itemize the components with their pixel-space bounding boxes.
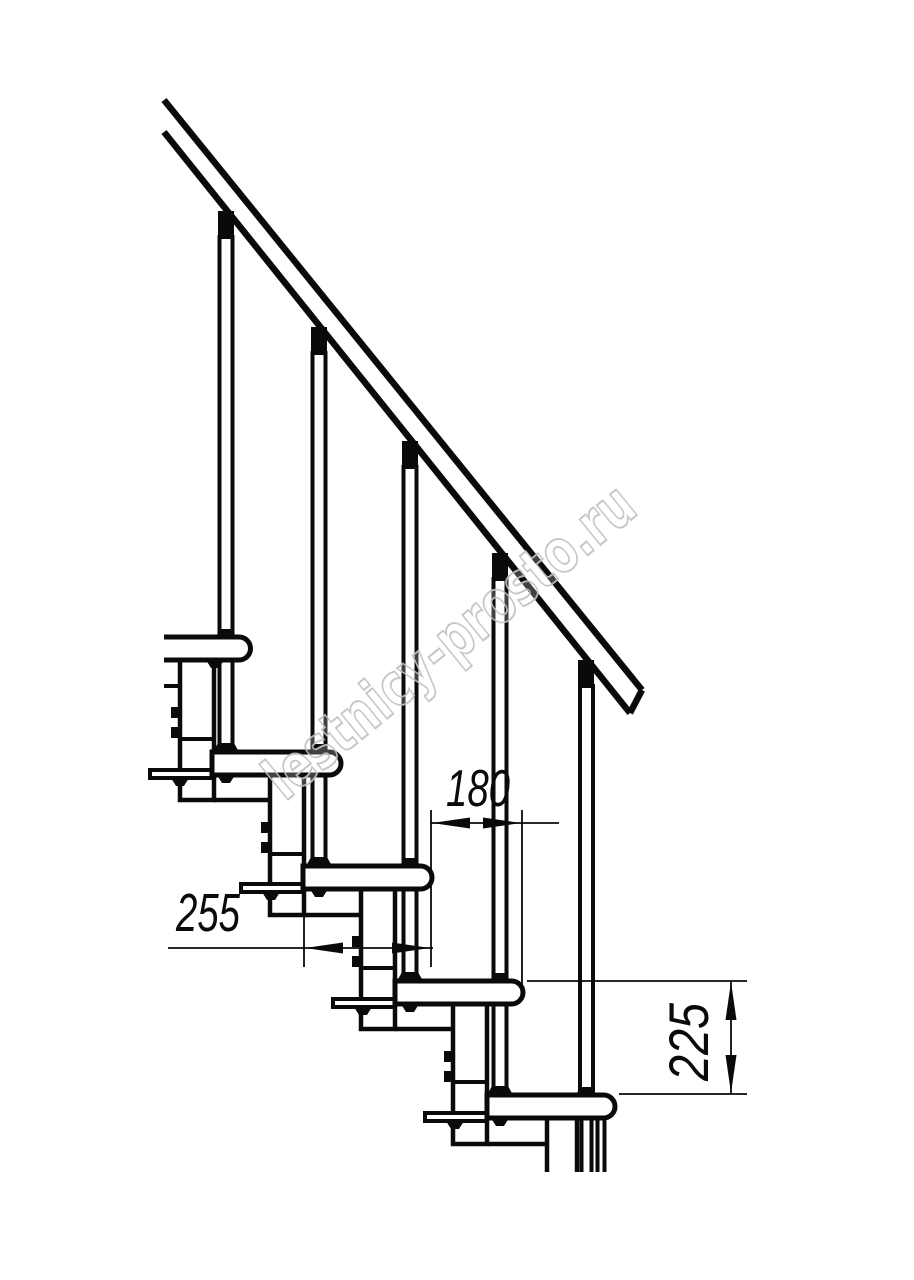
baluster-rail-fitting	[311, 327, 327, 355]
module-clip	[444, 1071, 455, 1082]
module-clip	[171, 727, 182, 738]
rear-plate-4	[333, 999, 395, 1007]
arrowhead-down	[726, 1055, 737, 1093]
module-clip	[352, 956, 363, 967]
module-clip	[444, 1051, 455, 1062]
dimension-label-180: 180	[446, 760, 510, 818]
rear-plate-5	[425, 1113, 487, 1121]
baluster-rail-fitting	[218, 211, 234, 239]
module-clip	[171, 707, 182, 718]
baluster-rod	[580, 686, 593, 1118]
baluster-foot	[397, 972, 423, 981]
baluster-foot	[213, 743, 239, 752]
rear-plate-3	[241, 884, 303, 892]
module-clip	[261, 822, 272, 833]
arrowhead-up	[726, 982, 737, 1020]
baluster-foot	[306, 857, 332, 866]
tread-1	[164, 637, 251, 660]
bolt-nub	[217, 775, 235, 783]
tread-4	[395, 981, 523, 1004]
handrail-end-cut	[630, 690, 642, 713]
baluster-rail-fitting	[578, 660, 594, 688]
bolt-nub	[310, 889, 328, 897]
arrowhead-left	[305, 943, 343, 954]
chain-module-5	[547, 1118, 577, 1172]
arrowhead-left	[432, 818, 470, 829]
staircase-technical-drawing: 255 180 225 lestnicy-prosto.ru	[0, 0, 914, 1280]
dimension-label-225: 225	[657, 1002, 720, 1082]
rear-plate-2	[150, 770, 212, 778]
baluster-rod	[404, 467, 417, 981]
bolt-nub	[401, 1004, 419, 1012]
bolt-nub	[491, 1118, 509, 1126]
dimension-step-rise: 225	[527, 981, 747, 1094]
module-clip	[261, 842, 272, 853]
baluster-rod	[494, 579, 507, 1095]
module-clip	[352, 936, 363, 947]
baluster-foot	[487, 1086, 513, 1095]
drawing-canvas: 255 180 225 lestnicy-prosto.ru	[0, 0, 914, 1280]
tread-5	[487, 1095, 615, 1118]
baluster-rail-fitting	[402, 441, 418, 469]
dimension-label-255: 255	[175, 883, 240, 943]
tread-3	[303, 866, 432, 889]
baluster-rod	[220, 237, 233, 752]
baluster-1	[218, 211, 234, 752]
